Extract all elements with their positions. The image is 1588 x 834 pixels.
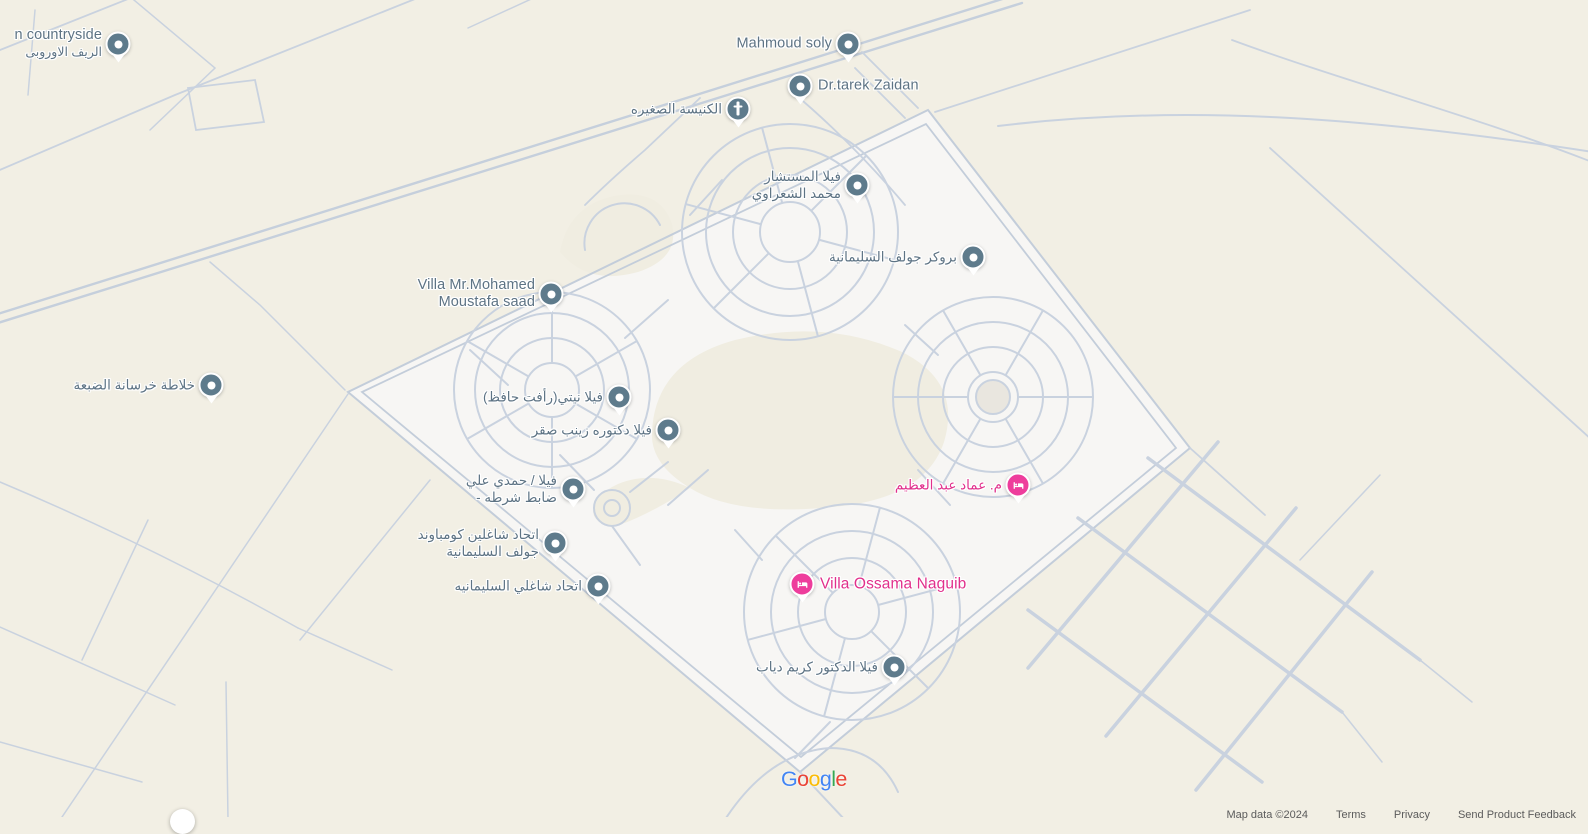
poi-pin-icon [586,574,611,599]
bed-icon [1012,479,1025,492]
cross-icon [728,99,749,120]
bed-icon [796,578,809,591]
poi-label: الكنيسة الصغيره [631,101,722,118]
poi-label: فيلا الدكتور كريم دياب [756,659,878,676]
map-control-button[interactable] [170,809,195,834]
terms-link[interactable]: Terms [1336,809,1366,821]
pin-dot-icon [969,253,977,261]
poi-label: n countryside الريف الاوروبى [14,27,102,61]
poi-pin-icon [199,373,224,398]
lodging-label: Villa Ossama Naguib [820,576,966,593]
pin-dot-icon [796,82,804,90]
logo-letter: g [820,767,831,791]
poi-pin-icon [607,385,632,410]
poi-label: اتحاد شاغلين كومباوند جولف السليمانية [418,526,539,560]
pin-dot-icon [114,40,122,48]
pin-dot-icon [853,181,861,189]
pin-dot-icon [569,485,577,493]
map-data-text: Map data ©2024 [1226,809,1308,821]
lodging-pin-icon [1006,473,1031,498]
poi-pin-icon [882,655,907,680]
poi-pin-icon [539,282,564,307]
poi-pin-icon [961,245,986,270]
logo-letter: e [835,767,846,791]
roundabout-small [604,500,620,516]
church-pin-icon [726,97,751,122]
roundabout-center [976,380,1010,414]
map-attribution: Map data ©2024 Terms Privacy Send Produc… [1226,809,1576,821]
poi-label: اتحاد شاغلي السليمانيه [455,578,583,595]
poi-label: خلاطة خرسانة الضبعة [74,377,196,394]
poi-pin-icon [845,173,870,198]
pin-dot-icon [551,539,559,547]
poi-pin-icon [788,74,813,99]
logo-letter: G [781,767,797,791]
poi-pin-icon [836,32,861,57]
privacy-link[interactable]: Privacy [1394,809,1430,821]
pin-dot-icon [890,663,898,671]
poi-label: فيلا المستشار محمد الشعراوي [752,168,841,202]
google-maps-viewport[interactable]: { "colors": { "background": "#f2efe4", "… [0,0,1588,817]
poi-label: فيلا نيتي(رأفت حافظ) [483,389,603,406]
pin-dot-icon [207,381,215,389]
poi-label: Mahmoud soly [737,36,833,53]
poi-pin-icon [561,477,586,502]
pin-dot-icon [594,582,602,590]
map-canvas[interactable] [0,0,1588,817]
poi-label: Dr.tarek Zaidan [818,78,919,95]
poi-pin-icon [106,32,131,57]
logo-letter: o [797,767,808,791]
logo-letter: o [808,767,819,791]
poi-label: فيلا دكتوره زينب صقر [532,422,652,439]
pin-dot-icon [615,393,623,401]
lodging-label: م. عماد عبد العظيم [895,477,1002,494]
pin-dot-icon [547,290,555,298]
pin-dot-icon [664,426,672,434]
google-logo[interactable]: Google [781,767,847,792]
pin-dot-icon [844,40,852,48]
poi-label: Villa Mr.Mohamed Moustafa saad [418,277,535,311]
poi-label: بروكر جولف السليمانية [829,249,957,266]
poi-pin-icon [656,418,681,443]
poi-pin-icon [543,531,568,556]
poi-label: فيلا / حمدي علي - ضابط شرطه [466,472,557,506]
lodging-pin-icon [790,572,815,597]
feedback-link[interactable]: Send Product Feedback [1458,809,1576,821]
